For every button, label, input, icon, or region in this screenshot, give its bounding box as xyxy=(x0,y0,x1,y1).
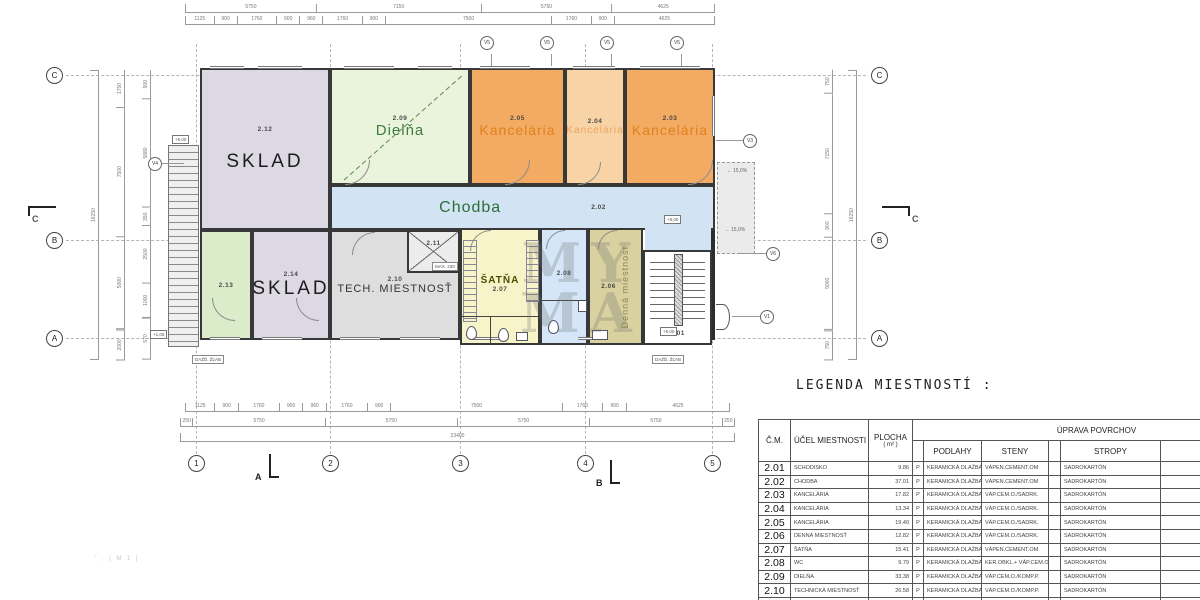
section-letter: A xyxy=(255,472,262,482)
dim-segment: 7500 xyxy=(116,108,125,237)
dim-segment: 1760 xyxy=(322,16,362,25)
dim-chain-left-3: 900588035025001000570 xyxy=(142,70,151,360)
dim-segment: 5750 xyxy=(589,418,721,427)
dim-segment: 1760 xyxy=(238,403,279,412)
room-number: 2.05 xyxy=(510,115,525,122)
p-cell: P xyxy=(913,557,924,571)
room-label: SKLAD xyxy=(252,278,329,300)
legend-row: 2.05 KANCELÁRIA 19.40 P KERAMICKÁ DLAŽBA… xyxy=(759,516,1200,530)
wall-finish-cell: KER.OBKL.+ VÁP.CEM.OM xyxy=(982,557,1049,571)
area-cell: 9.86 xyxy=(869,462,913,476)
dim-segment: 2000 xyxy=(116,330,125,361)
plocha-unit: ( m² ) xyxy=(872,442,909,448)
room-purpose-cell: KANCELÁRIA xyxy=(791,516,869,530)
dim-segment: 900 xyxy=(276,16,299,25)
room-number-cell: 2.10 xyxy=(759,584,791,598)
wall-finish-cell: VÁPEN.CEMENT.OM xyxy=(982,462,1049,476)
dim-segment: 1000 xyxy=(142,283,151,318)
dim-segment: 5750 xyxy=(481,4,612,13)
section-mark-A: A xyxy=(255,472,262,482)
legend-row: 2.02 CHODBA 37.01 P KERAMICKÁ DLAŽBA VÁP… xyxy=(759,475,1200,489)
p-cell: P xyxy=(913,502,924,516)
room-purpose-cell: DENNÁ MIESTNOSŤ xyxy=(791,529,869,543)
window xyxy=(262,337,302,340)
room-purpose-cell: DIELŇA xyxy=(791,570,869,584)
room-sklad-2-12: 2.12 SKLAD xyxy=(200,68,330,230)
level-mark: +5,00 xyxy=(660,327,677,336)
grid-bubble-C-left: C xyxy=(46,67,63,84)
dim-chain-left-total: 16250 xyxy=(90,70,99,360)
extra-cell xyxy=(1161,529,1200,543)
room-label: Denná miestnosť xyxy=(620,245,630,328)
extra-cell xyxy=(1161,570,1200,584)
room-number: 2.03 xyxy=(663,115,678,122)
p-cell: P xyxy=(913,543,924,557)
lockers xyxy=(526,240,539,302)
section-letter: C xyxy=(32,214,39,224)
room-number-cell: 2.07 xyxy=(759,543,791,557)
wall-finish-cell: VÁP.CEM.O./SADRK. xyxy=(982,502,1049,516)
dim-segment: 4625 xyxy=(611,4,715,13)
room-number: 2.02 xyxy=(591,204,606,211)
room-label: Kancelária xyxy=(632,122,708,138)
room-number-cell: 2.02 xyxy=(759,475,791,489)
mark-circle: V1 xyxy=(760,310,774,324)
slope-label: 15,0% xyxy=(727,168,747,174)
slope-label: 15,0% xyxy=(725,227,745,233)
dim-chain-top-2: 112590017609009601760900750017609004625 xyxy=(185,16,715,25)
grid-bubble-3: 3 xyxy=(452,455,469,472)
mark-circle: V5 xyxy=(480,36,494,50)
legend-title: LEGENDA MIESTNOSTÍ : xyxy=(796,378,1200,393)
leader-line xyxy=(611,54,612,66)
window xyxy=(472,337,500,340)
legend-row: 2.07 ŠATŇA 15.41 P KERAMICKÁ DLAŽBA VÁPE… xyxy=(759,543,1200,557)
legend-row: 2.04 KANCELÁRIA 13.34 P KERAMICKÁ DLAŽBA… xyxy=(759,502,1200,516)
grid-bubble-2: 2 xyxy=(322,455,339,472)
gap-cell xyxy=(1049,557,1061,571)
window xyxy=(480,66,530,69)
room-number-cell: 2.01 xyxy=(759,462,791,476)
dim-segment: 900 xyxy=(591,16,614,25)
max-height-label: MAX. 230 xyxy=(432,262,458,271)
mark-circle: V6 xyxy=(766,247,780,261)
dim-chain-right-total: 16250 xyxy=(848,70,857,360)
window xyxy=(210,66,244,69)
room-number: 2.06 xyxy=(601,283,616,290)
gap-cell xyxy=(1049,489,1061,503)
exit-door-swing xyxy=(716,304,730,330)
floor-finish-cell: KERAMICKÁ DLAŽBA xyxy=(924,584,982,598)
dim-segment: 5750 xyxy=(192,418,324,427)
gap-cell xyxy=(1049,570,1061,584)
extra-cell xyxy=(1161,489,1200,503)
room-number: 2.04 xyxy=(588,118,603,125)
stair-stringer xyxy=(674,254,683,326)
dim-segment: 750 xyxy=(824,330,833,360)
p-cell: P xyxy=(913,475,924,489)
ceiling-finish-cell: SADROKARTÓN xyxy=(1061,489,1161,503)
wall-finish-cell: VÁPEN.CEMENT.OM xyxy=(982,543,1049,557)
room-number: 2.14 xyxy=(284,271,299,278)
legend-row: 2.10 TECHNICKÁ MIESTNOSŤ 26.58 P KERAMIC… xyxy=(759,584,1200,598)
room-label: ŠATŇA xyxy=(481,275,520,286)
room-number: 2.12 xyxy=(258,126,273,133)
level-mark: +5,00 xyxy=(172,135,189,144)
satna-partition xyxy=(462,316,538,317)
floor-finish-cell: KERAMICKÁ DLAŽBA xyxy=(924,489,982,503)
exterior-stair-left xyxy=(168,145,199,347)
wall-finish-cell: VÁP.CEM.O./KOMP.P. xyxy=(982,584,1049,598)
legend-row: 2.03 KANCELÁRIA 17.82 P KERAMICKÁ DLAŽBA… xyxy=(759,489,1200,503)
satna-stall-wall xyxy=(490,316,491,344)
grid-bubble-4: 4 xyxy=(577,455,594,472)
ceiling-finish-cell: SADROKARTÓN xyxy=(1061,557,1161,571)
window xyxy=(573,66,615,69)
lockers xyxy=(463,240,477,322)
section-letter: B xyxy=(596,478,603,488)
legend-row: 2.06 DENNÁ MIESTNOSŤ 12.82 P KERAMICKÁ D… xyxy=(759,529,1200,543)
extra-cell xyxy=(1161,475,1200,489)
legend-table: Č.M. ÚČEL MIESTNOSTI PLOCHA ( m² ) ÚPRAV… xyxy=(758,419,1200,600)
window xyxy=(400,337,440,340)
dim-segment: 350 xyxy=(142,208,151,226)
room-number-cell: 2.04 xyxy=(759,502,791,516)
legend-rows: 2.01 SCHODISKO 9.86 P KERAMICKÁ DLAŽBA V… xyxy=(759,462,1200,600)
room-number: 2.10 xyxy=(388,276,403,283)
window xyxy=(640,66,700,69)
gutter-label: DAŽĎ. ŽĽAB xyxy=(652,355,684,364)
leader-line xyxy=(716,140,744,141)
leader-line xyxy=(162,163,184,164)
room-2-13: 2.13 xyxy=(200,230,252,340)
mark-circle: V4 xyxy=(148,157,162,171)
window xyxy=(344,66,394,69)
p-cell: P xyxy=(913,516,924,530)
dim-segment: 5750 xyxy=(457,418,589,427)
legend-row: 2.01 SCHODISKO 9.86 P KERAMICKÁ DLAŽBA V… xyxy=(759,462,1200,476)
floor-finish-cell: KERAMICKÁ DLAŽBA xyxy=(924,570,982,584)
grid-bubble-5: 5 xyxy=(704,455,721,472)
dim-segment: 5750 xyxy=(325,418,457,427)
grid-bubble-B-left: B xyxy=(46,232,63,249)
dim-segment: 900 xyxy=(362,16,385,25)
room-number-cell: 2.03 xyxy=(759,489,791,503)
floor-finish-cell: KERAMICKÁ DLAŽBA xyxy=(924,462,982,476)
extra-cell xyxy=(1161,462,1200,476)
floor-finish-cell: KERAMICKÁ DLAŽBA xyxy=(924,557,982,571)
window xyxy=(340,337,380,340)
p-cell: P xyxy=(913,462,924,476)
area-cell: 19.40 xyxy=(869,516,913,530)
area-cell: 9.79 xyxy=(869,557,913,571)
dim-chain-top-1: 5750715057504625 xyxy=(185,4,715,13)
area-cell: 12.82 xyxy=(869,529,913,543)
grid-bubble-A-right: A xyxy=(871,330,888,347)
ceiling-finish-cell: SADROKARTÓN xyxy=(1061,529,1161,543)
ceiling-finish-cell: SADROKARTÓN xyxy=(1061,584,1161,598)
dim-segment: 7500 xyxy=(385,16,551,25)
dim-segment: 2500 xyxy=(142,226,151,284)
wall-finish-cell: VÁPEN.CEMENT.OM xyxy=(982,475,1049,489)
floor-finish-cell: KERAMICKÁ DLAŽBA xyxy=(924,543,982,557)
leader-line xyxy=(551,54,552,66)
mark-circle: V5 xyxy=(540,36,554,50)
room-label: SKLAD xyxy=(226,151,303,173)
extra-cell xyxy=(1161,557,1200,571)
col-header-ucel: ÚČEL MIESTNOSTI xyxy=(791,420,869,462)
dim-segment: 960 xyxy=(302,403,326,412)
wall-finish-cell: VÁP.CEM.O./SADRK. xyxy=(982,489,1049,503)
room-purpose-cell: CHODBA xyxy=(791,475,869,489)
dim-segment: 7500 xyxy=(390,403,561,412)
dim-segment: 5000 xyxy=(116,237,125,329)
mark-circle: V3 xyxy=(743,134,757,148)
footnote-text: ' , | M 1 [ xyxy=(95,556,140,562)
dim-segment: 250 xyxy=(722,418,735,427)
room-chodba-2-02: Chodba 2.02 xyxy=(330,185,715,230)
room-label: Chodba xyxy=(439,199,501,217)
room-label: TECH. MIESTNOSŤ xyxy=(337,283,452,295)
room-number-cell: 2.06 xyxy=(759,529,791,543)
window xyxy=(418,66,452,69)
col-header-stropy: STROPY xyxy=(1061,441,1161,462)
dim-chain-left-2: 1750750050002000 xyxy=(116,70,125,360)
dim-segment: 7150 xyxy=(316,4,481,13)
grid-bubble-C-right: C xyxy=(871,67,888,84)
floor-finish-cell: KERAMICKÁ DLAŽBA xyxy=(924,475,982,489)
dim-segment: 1125 xyxy=(185,16,214,25)
col-header-cm: Č.M. xyxy=(759,420,791,462)
gap-cell xyxy=(1049,462,1061,476)
floor-finish-cell: KERAMICKÁ DLAŽBA xyxy=(924,502,982,516)
legend-row: 2.09 DIELŇA 33.38 P KERAMICKÁ DLAŽBA VÁP… xyxy=(759,570,1200,584)
col-header-extra xyxy=(1161,441,1200,462)
dim-segment: 1760 xyxy=(326,403,367,412)
dim-segment: 570 xyxy=(142,318,151,360)
ceiling-finish-cell: SADROKARTÓN xyxy=(1061,462,1161,476)
wc-partition xyxy=(542,300,586,301)
dim-segment: 5880 xyxy=(142,99,151,208)
plocha-label: PLOCHA xyxy=(872,433,909,442)
dim-segment: 1750 xyxy=(116,70,125,108)
section-mark-B: B xyxy=(596,478,603,488)
ceiling-finish-cell: SADROKARTÓN xyxy=(1061,475,1161,489)
dim-segment: 900 xyxy=(214,403,238,412)
floor-finish-cell: KERAMICKÁ DLAŽBA xyxy=(924,529,982,543)
dim-segment: 1125 xyxy=(185,403,214,412)
gap-cell xyxy=(1049,502,1061,516)
level-mark: +1,00 xyxy=(150,330,167,339)
col-header-podlahy: PODLAHY xyxy=(924,441,982,462)
p-cell: P xyxy=(913,489,924,503)
room-number-cell: 2.05 xyxy=(759,516,791,530)
leader-line xyxy=(732,316,762,317)
toilet xyxy=(466,326,477,340)
grid-bubble-B-right: B xyxy=(871,232,888,249)
extra-cell xyxy=(1161,584,1200,598)
ceiling-finish-cell: SADROKARTÓN xyxy=(1061,543,1161,557)
dim-segment: 16250 xyxy=(90,70,99,360)
dim-segment: 5750 xyxy=(185,4,316,13)
dim-segment: 900 xyxy=(279,403,303,412)
sink xyxy=(516,332,528,341)
p-cell: P xyxy=(913,584,924,598)
room-purpose-cell: SCHODISKO xyxy=(791,462,869,476)
room-purpose-cell: TECHNICKÁ MIESTNOSŤ xyxy=(791,584,869,598)
leader-line xyxy=(491,54,492,66)
room-number-cell: 2.08 xyxy=(759,557,791,571)
section-letter: C xyxy=(912,214,919,224)
col-header-uprava: ÚPRAVA POVRCHOV xyxy=(913,420,1200,441)
dim-segment: 1760 xyxy=(562,403,603,412)
room-number-cell: 2.09 xyxy=(759,570,791,584)
room-purpose-cell: ŠATŇA xyxy=(791,543,869,557)
dim-segment: 900 xyxy=(142,70,151,99)
window xyxy=(258,66,302,69)
col-header-plocha: PLOCHA ( m² ) xyxy=(869,420,913,462)
area-cell: 13.34 xyxy=(869,502,913,516)
mark-circle: V5 xyxy=(600,36,614,50)
dim-segment: 900 xyxy=(602,403,626,412)
wall-finish-cell: VÁP.CEM.O./KOMP.P. xyxy=(982,570,1049,584)
gap-cell xyxy=(1049,475,1061,489)
leader-line xyxy=(740,253,768,254)
dim-segment: 1760 xyxy=(237,16,277,25)
gap-cell xyxy=(1049,529,1061,543)
dim-segment: 900 xyxy=(214,16,237,25)
room-purpose-cell: KANCELÁRIA xyxy=(791,489,869,503)
gap-cell xyxy=(1049,543,1061,557)
gap-cell xyxy=(1049,584,1061,598)
leader-line xyxy=(681,54,682,66)
p-cell: P xyxy=(913,570,924,584)
dim-segment: 23400 xyxy=(180,433,735,442)
window xyxy=(210,337,240,340)
grid-bubble-1: 1 xyxy=(188,455,205,472)
toilet xyxy=(498,328,509,342)
ceiling-finish-cell: SADROKARTÓN xyxy=(1061,570,1161,584)
extra-cell xyxy=(1161,516,1200,530)
floor-finish-cell: KERAMICKÁ DLAŽBA xyxy=(924,516,982,530)
col-header-steny: STENY xyxy=(982,441,1049,462)
dim-segment: 5000 xyxy=(824,238,833,330)
toilet xyxy=(548,320,559,334)
col-header-gap xyxy=(1049,441,1061,462)
dim-segment: 4625 xyxy=(626,403,730,412)
area-cell: 33.38 xyxy=(869,570,913,584)
extra-cell xyxy=(1161,502,1200,516)
dim-chain-bottom-2: 2505750575057505750250 xyxy=(180,418,735,427)
room-label: Kancelária xyxy=(479,122,555,138)
wall-finish-cell: VÁP.CEM.O./SADRK. xyxy=(982,529,1049,543)
dim-segment: 16250 xyxy=(848,70,857,360)
chodba-stair-approach xyxy=(645,228,711,250)
gap-cell xyxy=(1049,516,1061,530)
room-purpose-cell: KANCELÁRIA xyxy=(791,502,869,516)
dim-segment: 1760 xyxy=(551,16,591,25)
room-number: 2.13 xyxy=(219,282,234,289)
grid-bubble-A-left: A xyxy=(46,330,63,347)
dim-segment: 4625 xyxy=(614,16,715,25)
p-cell: P xyxy=(913,529,924,543)
room-number: 2.07 xyxy=(493,286,508,293)
dim-segment: 900 xyxy=(367,403,391,412)
kitchenette xyxy=(592,330,608,340)
area-cell: 17.82 xyxy=(869,489,913,503)
mark-circle: V5 xyxy=(670,36,684,50)
area-cell: 37.01 xyxy=(869,475,913,489)
window xyxy=(712,96,715,136)
dim-segment: 960 xyxy=(299,16,322,25)
dim-chain-bottom-total: 23400 xyxy=(180,433,735,442)
gutter-label: DAŽĎ. ŽĽAB xyxy=(192,355,224,364)
legend-row: 2.08 WC 9.79 P KERAMICKÁ DLAŽBA KER.OBKL… xyxy=(759,557,1200,571)
exterior-landing-right xyxy=(717,162,755,254)
legend-block: LEGENDA MIESTNOSTÍ : Č.M. ÚČEL MIESTNOST… xyxy=(758,378,1200,600)
dim-segment: 7150 xyxy=(824,94,833,214)
room-number: 2.08 xyxy=(557,270,572,277)
col-header-p xyxy=(913,441,924,462)
room-purpose-cell: WC xyxy=(791,557,869,571)
ceiling-finish-cell: SADROKARTÓN xyxy=(1061,516,1161,530)
extra-cell xyxy=(1161,543,1200,557)
sink xyxy=(578,300,587,312)
dim-chain-right-2: 75071509005000750 xyxy=(824,70,833,360)
ceiling-finish-cell: SADROKARTÓN xyxy=(1061,502,1161,516)
dim-segment: 250 xyxy=(180,418,192,427)
dim-chain-bottom-1: 112590017609009601760900750017609004625 xyxy=(185,403,730,412)
dim-segment: 900 xyxy=(824,214,833,238)
floor-plan-sheet: 5750715057504625 11259001760900960176090… xyxy=(0,0,1200,600)
room-label: Kancelária xyxy=(566,125,623,136)
area-cell: 15.41 xyxy=(869,543,913,557)
wall-finish-cell: VÁP.CEM.O./SADRK. xyxy=(982,516,1049,530)
level-mark: +5,00 xyxy=(664,215,681,224)
room-sklad-2-14: 2.14 SKLAD xyxy=(252,230,330,340)
dim-segment: 750 xyxy=(824,70,833,94)
area-cell: 26.58 xyxy=(869,584,913,598)
